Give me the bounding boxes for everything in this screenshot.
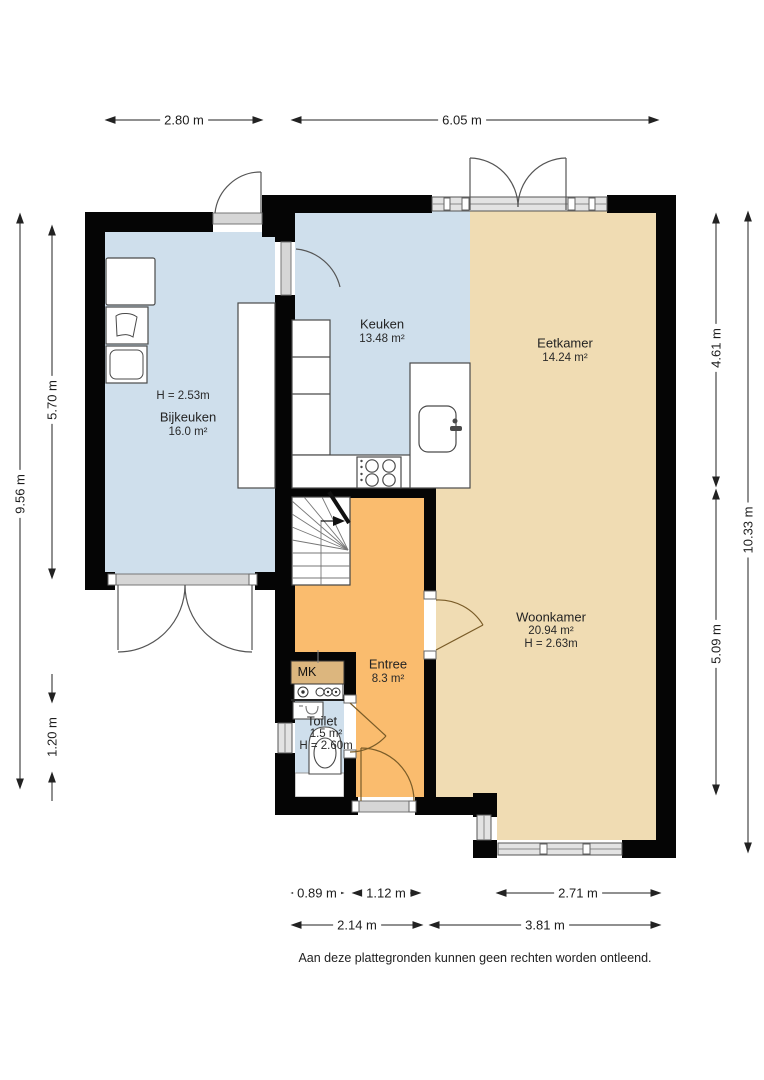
- dim-bottom-window-width: 2.71 m: [554, 886, 602, 901]
- room-woonkamer-area: 20.94 m²: [528, 625, 573, 637]
- dim-bottom-left-total: 2.14 m: [333, 918, 381, 933]
- kitchen-sink-icon: [410, 363, 470, 488]
- dim-left-outer: 9.56 m: [13, 470, 28, 518]
- room-keuken-name: Keuken: [360, 317, 404, 332]
- dim-right-outer: 10.33 m: [741, 503, 756, 558]
- dim-bottom-toilet-width: 0.89 m: [293, 886, 341, 901]
- tall-cabinet: [238, 303, 275, 488]
- worktop: [106, 258, 155, 305]
- room-toilet-ceiling: H = 2.60m: [299, 740, 352, 752]
- room-toilet-name: Toilet: [307, 714, 337, 729]
- dryer-icon: [106, 346, 147, 383]
- dim-right-lower: 5.09 m: [709, 620, 724, 668]
- washing-machine-icon: [106, 307, 148, 344]
- dim-top-main: 6.05 m: [438, 113, 486, 128]
- dim-bottom-right-total: 3.81 m: [521, 918, 569, 933]
- stove-icon: [357, 457, 401, 488]
- room-toilet-area: 1.5 m²: [310, 728, 343, 740]
- room-keuken-area: 13.48 m²: [359, 333, 404, 345]
- dim-bottom-entree-width: 1.12 m: [362, 886, 410, 901]
- room-eetkamer-name: Eetkamer: [537, 336, 593, 351]
- room-meterkast-label: MK: [298, 665, 317, 679]
- dim-left-upper: 5.70 m: [45, 376, 60, 424]
- stairs: [292, 492, 350, 585]
- room-entree-area: 8.3 m²: [372, 673, 405, 685]
- floor-plan-page: 2.80 m 6.05 m 9.56 m 5.70 m 1.20 m 4.61 …: [0, 0, 764, 1080]
- dim-left-lower: 1.20 m: [45, 713, 60, 761]
- room-entree-name: Entree: [369, 657, 407, 672]
- room-bijkeuken-ceiling: H = 2.53m: [156, 390, 209, 402]
- room-woonkamer-name: Woonkamer: [516, 610, 586, 625]
- dim-top-bijkeuken: 2.80 m: [160, 113, 208, 128]
- dim-right-upper: 4.61 m: [709, 324, 724, 372]
- room-bijkeuken-name: Bijkeuken: [160, 410, 216, 425]
- floor-plan-drawing: [0, 0, 764, 1080]
- disclaimer-text: Aan deze plattegronden kunnen geen recht…: [298, 951, 651, 965]
- room-eetkamer-area: 14.24 m²: [542, 352, 587, 364]
- room-bijkeuken-area: 16.0 m²: [169, 426, 208, 438]
- room-woonkamer-ceiling: H = 2.63m: [524, 638, 577, 650]
